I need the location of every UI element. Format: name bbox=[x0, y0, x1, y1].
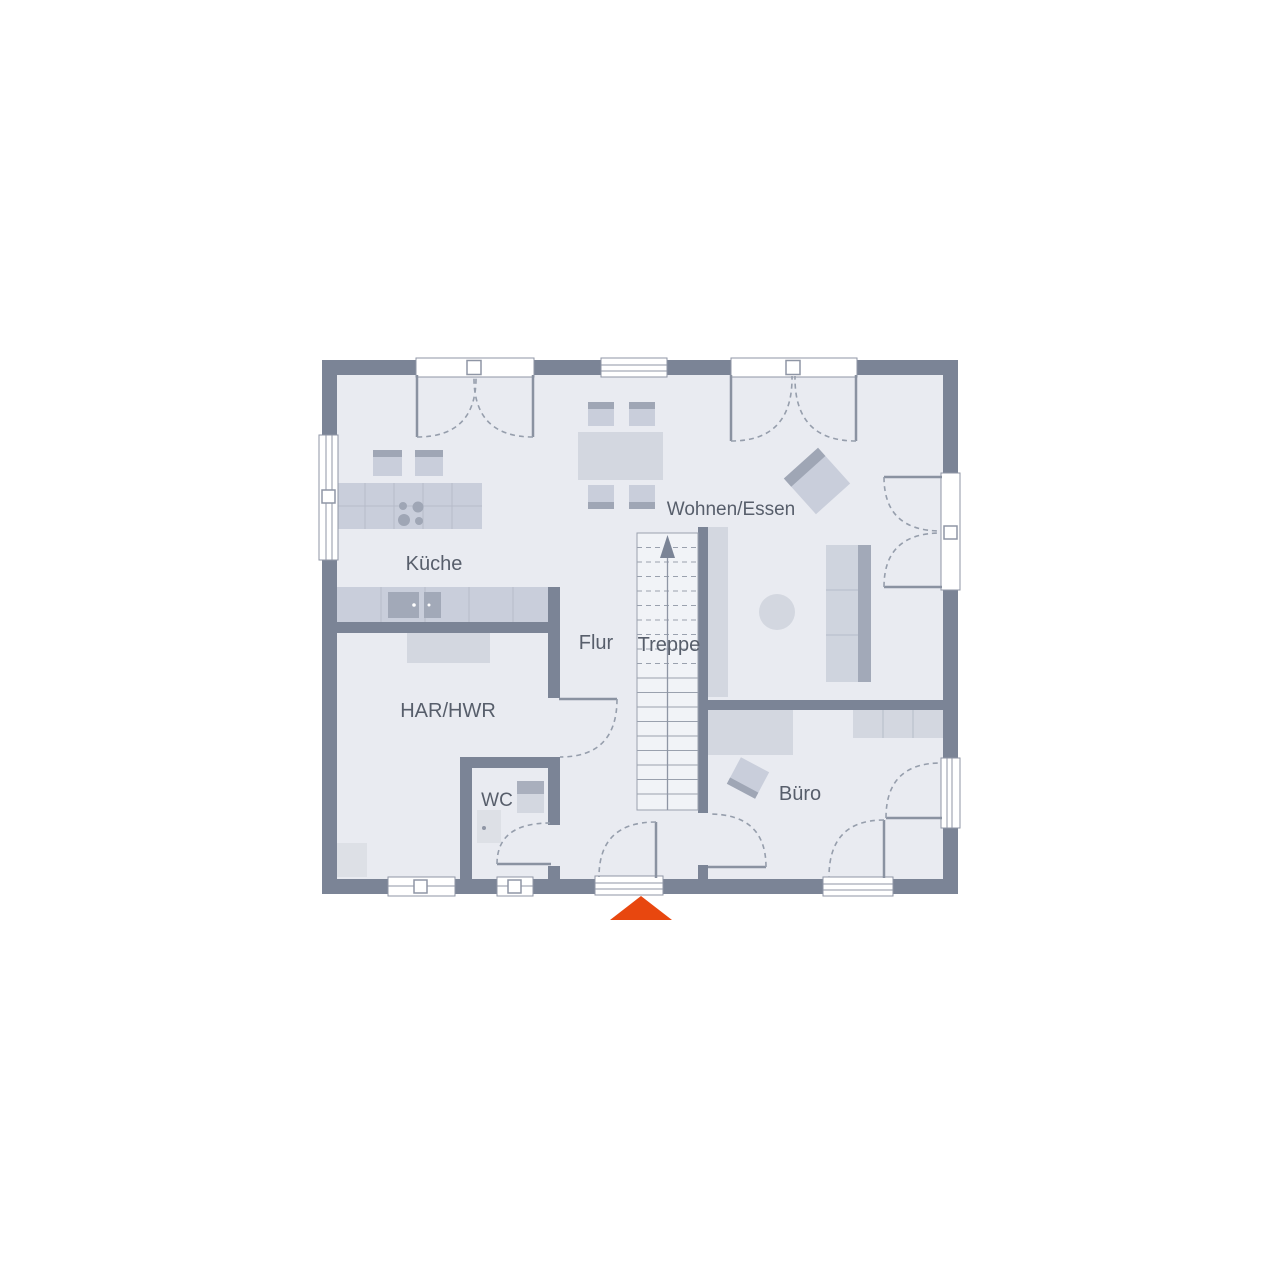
stool bbox=[373, 450, 402, 476]
floor-plan-canvas: Küche Wohnen/Essen Flur Treppe HAR/HWR W… bbox=[0, 0, 1280, 1280]
room-label-wc: WC bbox=[481, 790, 513, 811]
entrance-door-opening bbox=[595, 876, 663, 895]
dining-chair bbox=[629, 402, 655, 426]
sideboard bbox=[407, 633, 490, 663]
dining-table bbox=[578, 432, 663, 480]
room-label-wohnen-essen: Wohnen/Essen bbox=[667, 499, 796, 520]
window-top-center bbox=[601, 358, 667, 377]
door-handle-icon bbox=[786, 361, 800, 375]
room-label-treppe: Treppe bbox=[638, 634, 701, 656]
toilet-icon bbox=[477, 810, 501, 843]
door-window-office-south bbox=[823, 877, 893, 896]
kitchen-counter bbox=[337, 587, 548, 622]
appliance-icon bbox=[424, 592, 441, 618]
dining-chair bbox=[629, 485, 655, 509]
window-handle-icon bbox=[414, 880, 427, 893]
door-window-office-east bbox=[941, 758, 960, 828]
room-label-buero: Büro bbox=[779, 783, 821, 805]
sofa bbox=[826, 545, 871, 682]
room-label-kueche: Küche bbox=[406, 553, 463, 575]
staircase bbox=[637, 533, 698, 810]
door-handle-icon bbox=[944, 526, 957, 539]
door-handle-icon bbox=[467, 361, 481, 375]
window-handle-icon bbox=[508, 880, 521, 893]
entrance-marker-icon bbox=[610, 896, 672, 920]
room-label-har-hwr: HAR/HWR bbox=[400, 700, 496, 722]
shelf bbox=[853, 708, 943, 738]
coffee-table bbox=[759, 594, 795, 630]
window-handle-icon bbox=[322, 490, 335, 503]
floor-plan-drawing: Küche Wohnen/Essen Flur Treppe HAR/HWR W… bbox=[0, 0, 1280, 1280]
tv-board bbox=[708, 527, 728, 697]
room-label-flur: Flur bbox=[579, 632, 614, 654]
dining-chair bbox=[588, 402, 614, 426]
desk bbox=[708, 708, 793, 755]
dining-chair bbox=[588, 485, 614, 509]
stool bbox=[415, 450, 443, 476]
equipment bbox=[337, 843, 367, 877]
